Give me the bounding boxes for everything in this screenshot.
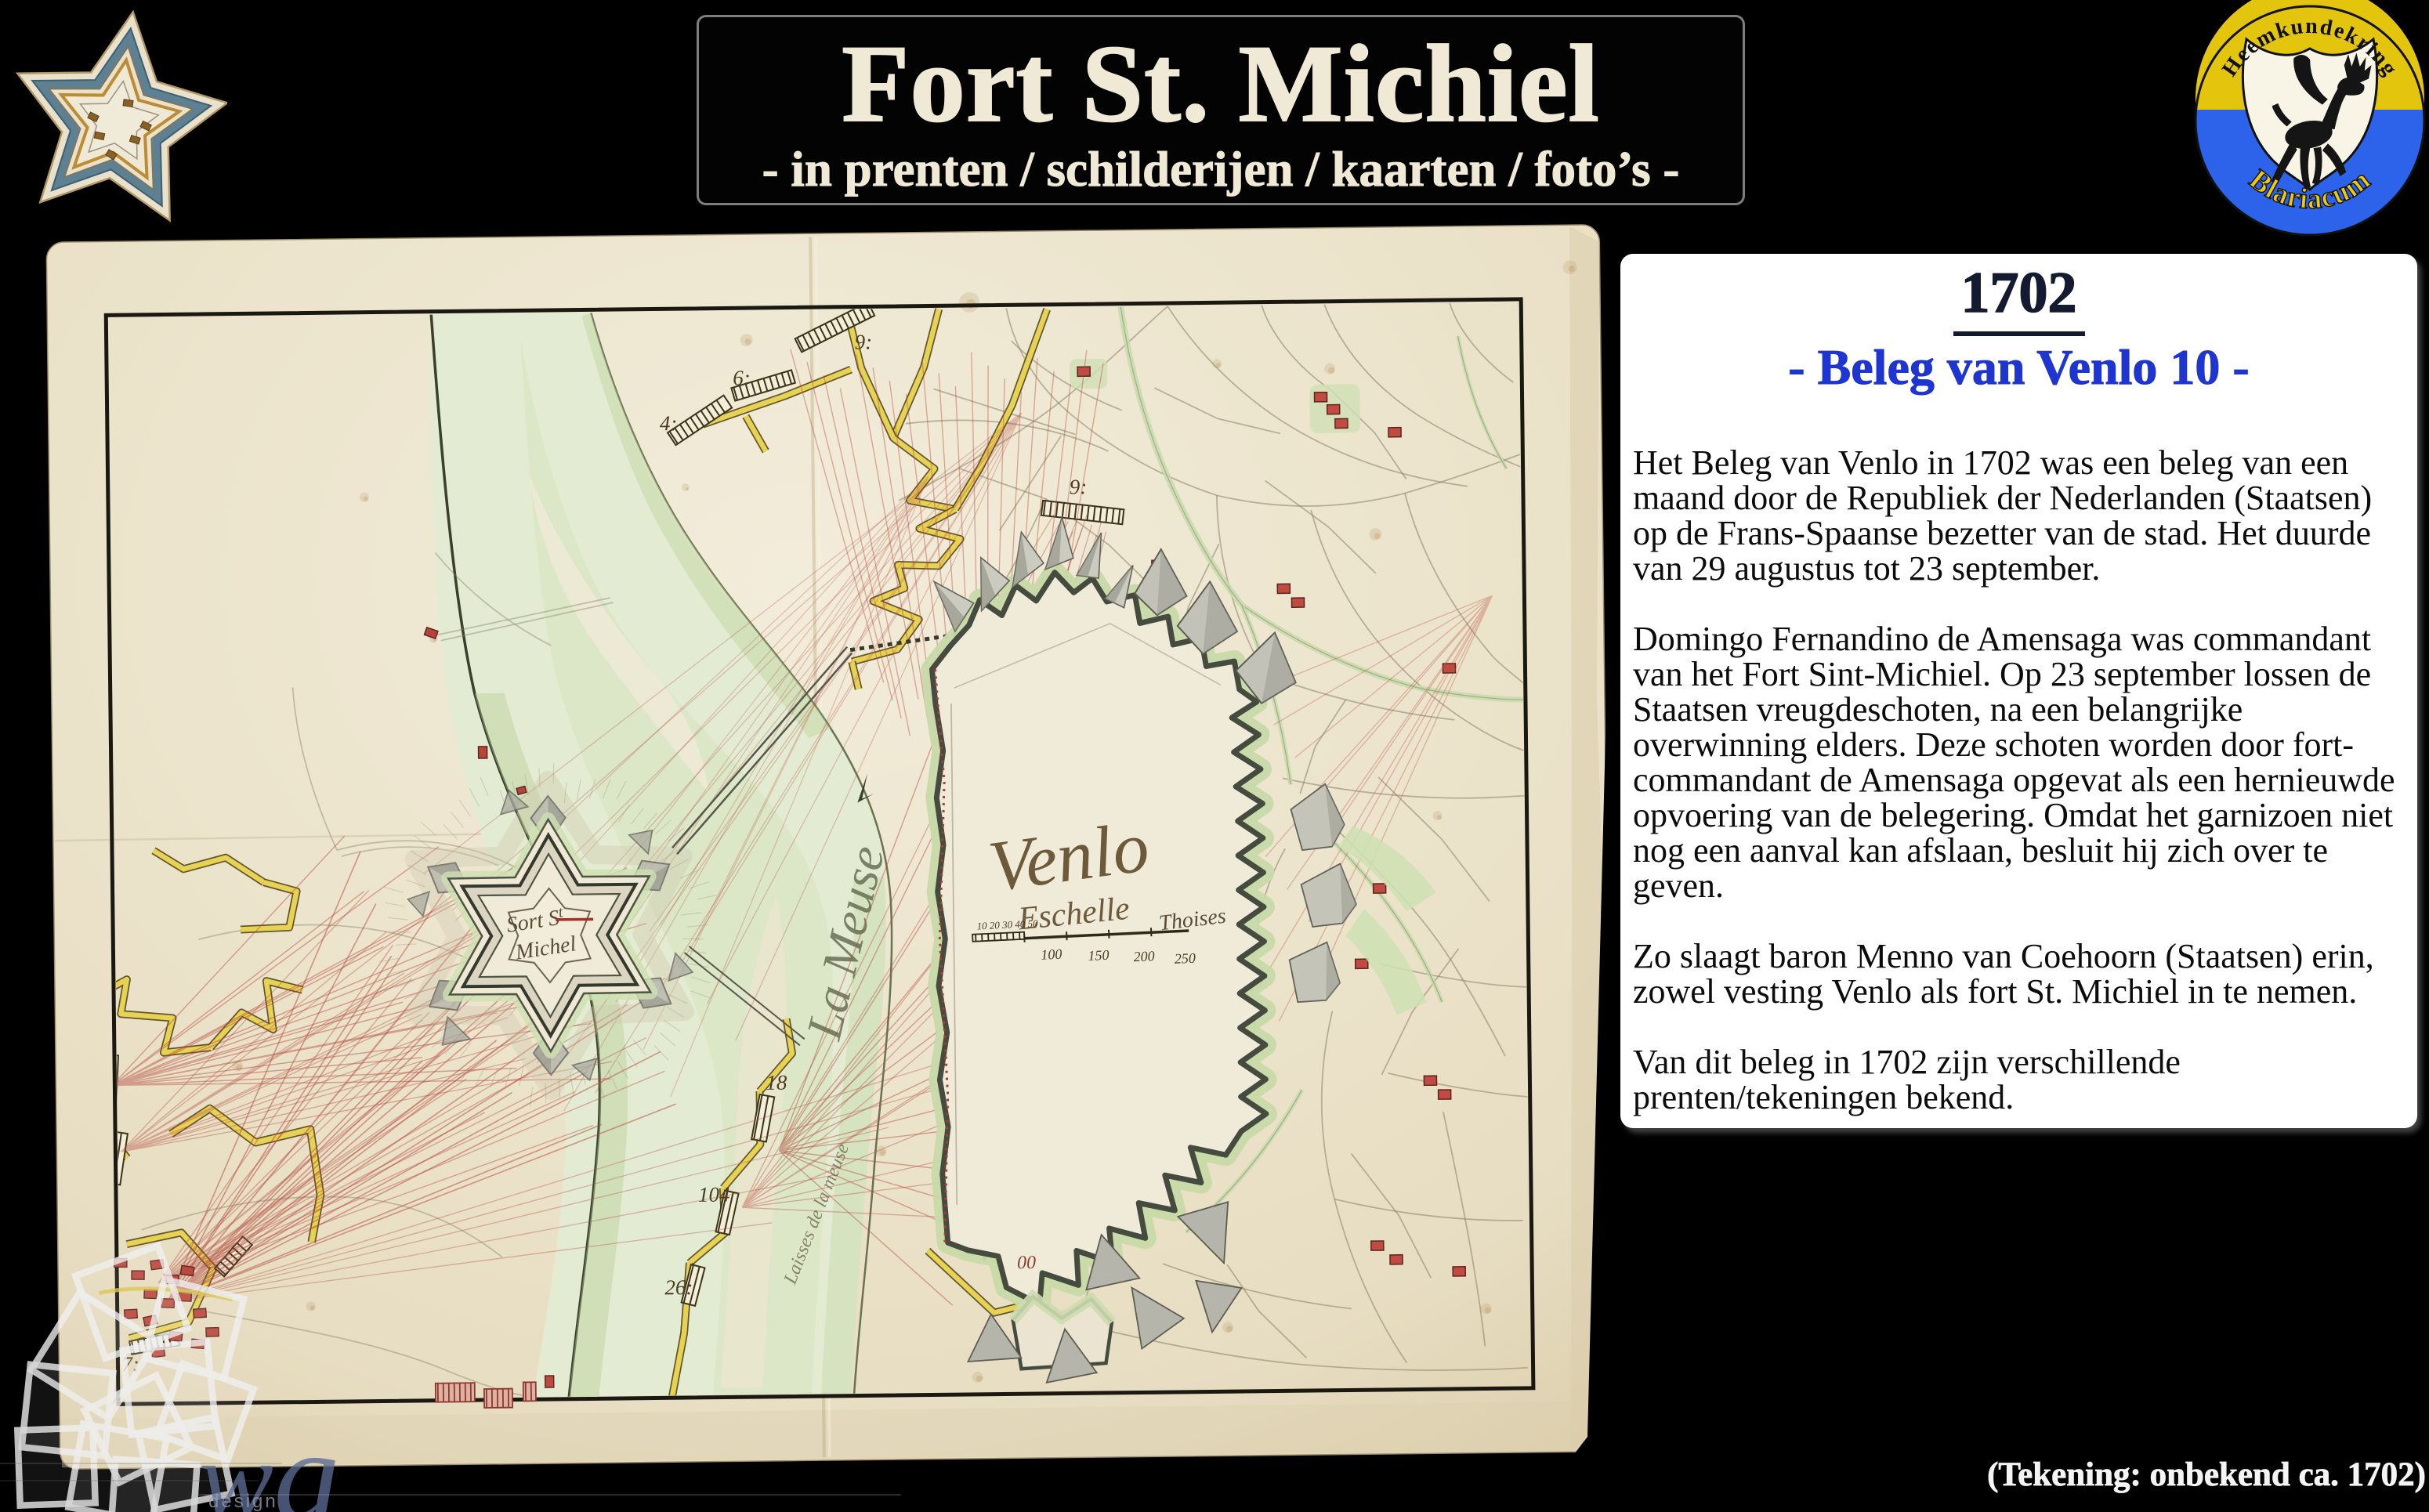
svg-text:6:: 6:: [733, 366, 751, 389]
svg-text:4:: 4:: [660, 411, 678, 435]
svg-text:200: 200: [1133, 948, 1155, 964]
svg-text:250: 250: [1174, 950, 1196, 967]
svg-text:9:: 9:: [1070, 475, 1088, 498]
svg-text:26:: 26:: [664, 1275, 693, 1299]
svg-text:100: 100: [1041, 946, 1062, 963]
svg-text:104: 104: [698, 1182, 730, 1206]
svg-text:9:: 9:: [855, 330, 873, 353]
svg-text:18: 18: [766, 1071, 787, 1094]
svg-text:150: 150: [1088, 947, 1110, 964]
svg-text:00: 00: [1017, 1253, 1036, 1273]
